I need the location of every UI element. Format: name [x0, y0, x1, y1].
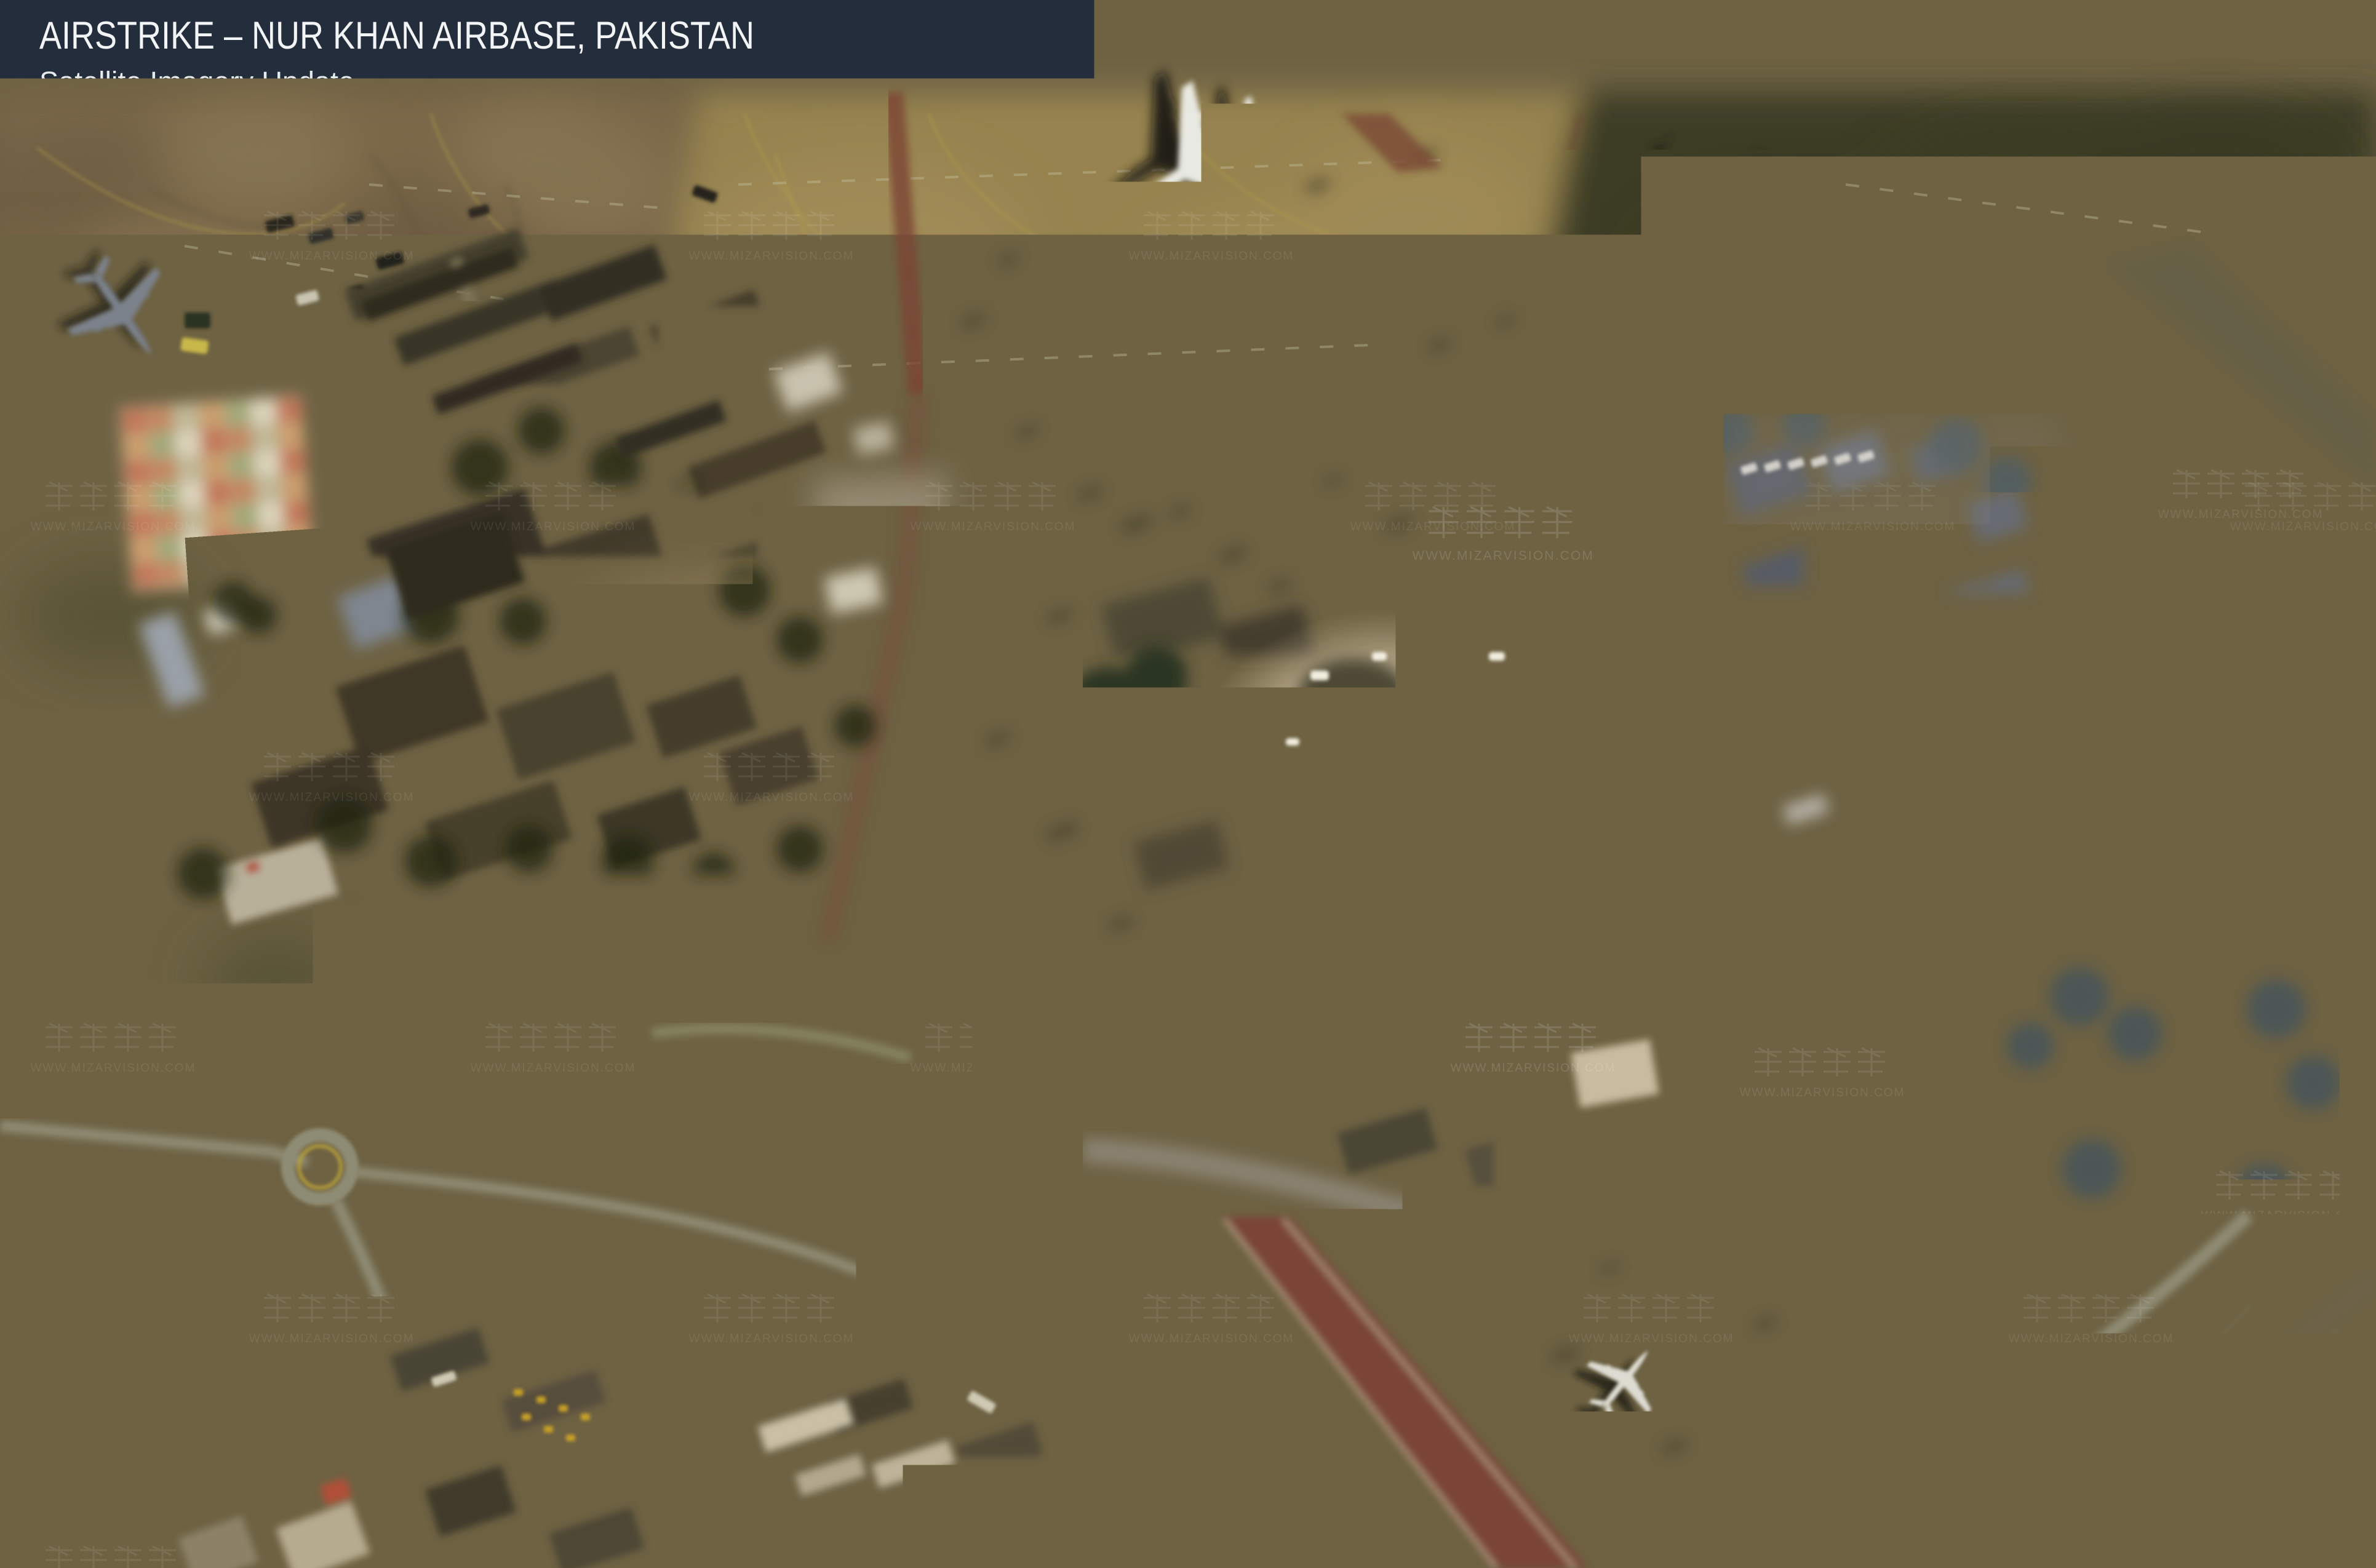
- svg-text:THE AIRBASE FACILITY HAS: THE AIRBASE FACILITY HAS: [1117, 566, 1416, 591]
- svg-text:MILITARY SUPPORT RELATED: MILITARY SUPPORT RELATED: [1325, 1056, 1644, 1081]
- svg-text:ALSO SUSTAINED: ALSO SUSTAINED: [1171, 596, 1361, 621]
- svg-text:DESTROYED: DESTROYED: [1416, 1086, 1553, 1111]
- svg-text:POST STRIKE IMAGE: POST STRIKE IMAGE: [1164, 384, 1367, 410]
- svg-text:Damien Symon - @detresfa_: Damien Symon - @detresfa_: [97, 1417, 459, 1449]
- svg-text:SEE INSET: SEE INSET: [381, 715, 500, 740]
- svg-text:AIRSTRIKE – NUR KHAN AIRBASE,: AIRSTRIKE – NUR KHAN AIRBASE, PAKISTAN: [39, 14, 754, 57]
- svg-text:Contains Materials © MIZARVISI: Contains Materials © MIZARVISION: [39, 1524, 365, 1546]
- svg-text:EST 10-11 May 2025: EST 10-11 May 2025: [2094, 41, 2364, 74]
- svg-text:Image Not To Scale, Boundary R: Image Not To Scale, Boundary Representat…: [39, 1501, 744, 1524]
- svg-text:TARGET AREA: TARGET AREA: [362, 683, 520, 708]
- svg-text:AT LEAST 2 TRUCKS, LIKELY: AT LEAST 2 TRUCKS, LIKELY: [1333, 1025, 1636, 1051]
- svg-text:Representation Of Locations Ar: Representation Of Locations Are Approxim…: [39, 1478, 718, 1501]
- svg-text:CONSIDERABLE DAMAGE: CONSIDERABLE DAMAGE: [1129, 626, 1405, 651]
- svg-text:TARGET AREA: TARGET AREA: [2020, 637, 2182, 663]
- svg-text:TRUCK: TRUCK: [1497, 709, 1578, 735]
- svg-text:TRUCK: TRUCK: [1497, 923, 1578, 949]
- svg-text:Satellite Imagery Update: Satellite Imagery Update: [39, 66, 354, 97]
- svg-text:PRE STRIKE IMAGE: PRE STRIKE IMAGE: [1805, 381, 1997, 407]
